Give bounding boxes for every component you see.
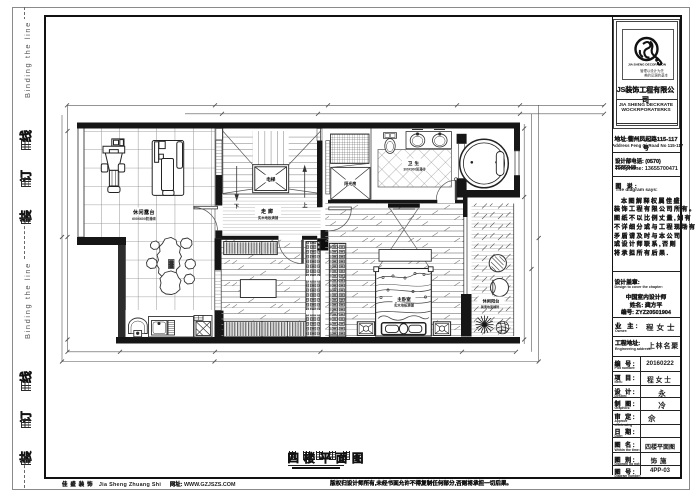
svg-text:300X300防滑砖: 300X300防滑砖 [403,166,426,171]
svg-text:实木地板满铺: 实木地板满铺 [394,302,414,307]
svg-text:美的见源的基本: 美的见源的基本 [644,72,668,77]
svg-text:卫生: 卫生 [408,160,421,167]
svg-text:管理以设计为先: 管理以设计为先 [640,68,664,73]
svg-text:JIA SHENG DECORATION: JIA SHENG DECORATION [628,62,667,66]
svg-text:走廊: 走廊 [260,208,275,215]
svg-text:阳光房: 阳光房 [344,180,356,186]
svg-text:600X600防滑砖: 600X600防滑砖 [132,216,156,221]
svg-text:休闲露台: 休闲露台 [132,209,155,216]
svg-text:美清地面铺砖: 美清地面铺砖 [480,304,500,309]
svg-text:电梯: 电梯 [266,176,276,183]
svg-text:主卧室: 主卧室 [397,296,411,303]
svg-text:实木地板满铺: 实木地板满铺 [258,215,279,220]
svg-text:休闲阳台: 休闲阳台 [482,298,500,305]
